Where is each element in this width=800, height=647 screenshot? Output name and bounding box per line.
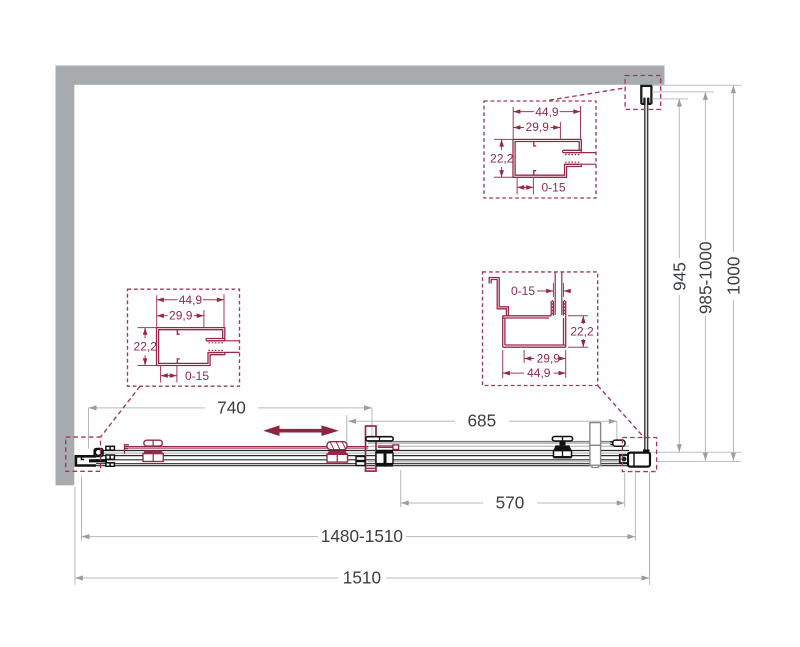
- svg-text:44,9: 44,9: [527, 366, 551, 380]
- svg-text:685: 685: [467, 411, 496, 431]
- svg-text:29,9: 29,9: [537, 352, 561, 366]
- svg-text:0-15: 0-15: [511, 284, 535, 298]
- svg-text:945: 945: [669, 262, 689, 291]
- svg-text:1000: 1000: [723, 257, 743, 295]
- svg-text:44,9: 44,9: [535, 105, 559, 119]
- svg-text:570: 570: [496, 492, 525, 512]
- svg-text:985-1000: 985-1000: [695, 241, 715, 314]
- svg-text:22,2: 22,2: [490, 151, 514, 165]
- svg-text:29,9: 29,9: [526, 120, 550, 134]
- svg-text:1480-1510: 1480-1510: [321, 526, 403, 546]
- svg-text:740: 740: [217, 397, 246, 417]
- svg-text:0-15: 0-15: [541, 181, 565, 195]
- svg-text:1510: 1510: [343, 567, 381, 587]
- svg-text:22,2: 22,2: [570, 325, 594, 339]
